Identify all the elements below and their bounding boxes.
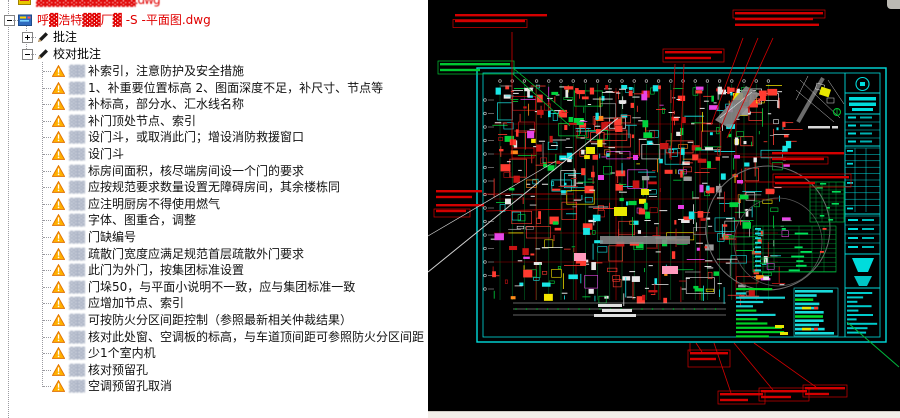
callout-text-redacted — [720, 393, 763, 395]
comment-text: 应按规范要求数量设置无障碍房间，其余楼栋同 — [88, 180, 340, 195]
annotation-tree-panel: ▓▓▓▓▓▓▓▓▓▓▓▓.dwg 呼▓浩特▓▓厂▓ -S -平面图.dwg 批注 — [0, 0, 428, 418]
comment-author-redacted: ▓▓ — [69, 331, 84, 344]
review-comment-item[interactable]: ▓▓ 字体、图重合，调整 — [0, 212, 428, 228]
review-comment-item[interactable]: ▓▓ 应按规范要求数量设置无障碍房间，其余楼栋同 — [0, 179, 428, 195]
warning-icon — [52, 181, 65, 193]
review-comment-item[interactable]: ▓▓ 门垛50，与平面小说明不一致，应与集团标准一致 — [0, 279, 428, 295]
callout-text-redacted — [665, 51, 722, 53]
callout-text-redacted — [775, 176, 849, 178]
callout-text-redacted — [761, 390, 807, 392]
warning-icon — [52, 115, 65, 127]
review-comment-item[interactable]: ▓▓ 疏散门宽度应满足规范首层疏散外门要求 — [0, 246, 428, 262]
comment-author-redacted: ▓▓ — [69, 380, 84, 393]
comment-text: 可按防火分区间距控制（参照最新相关仲裁结果） — [88, 313, 352, 328]
comment-author-redacted: ▓▓ — [69, 347, 84, 360]
review-comment-item[interactable]: ▓▓ 少1个室内机 — [0, 345, 428, 361]
cad-drawing[interactable] — [428, 0, 900, 418]
callout-text-redacted — [440, 63, 510, 65]
warning-icon — [52, 380, 65, 392]
cad-background — [428, 0, 900, 418]
review-comment-item[interactable]: ▓▓ 设门斗，或取消此门；增设消防救援窗口 — [0, 129, 428, 145]
comment-text: 补标高，部分水、汇水线名称 — [88, 97, 244, 112]
review-comment-item[interactable]: ▓▓ 核对此处窗、空调板的标高，与车道顶间距可参照防火分区间距 — [0, 329, 428, 345]
callout-text-redacted — [665, 57, 711, 59]
warning-icon — [52, 148, 65, 160]
comment-text: 应注明厨房不得使用燃气 — [88, 197, 220, 212]
callout-text-redacted — [455, 14, 547, 16]
site-plan-caption-redacted — [808, 126, 830, 129]
pencil-icon — [37, 31, 50, 43]
callout-text-redacted — [690, 358, 716, 360]
warning-icon — [52, 65, 65, 77]
callout-text-redacted — [720, 399, 748, 401]
comment-text: 补门顶处节点、索引 — [88, 114, 196, 129]
comment-text: 门垛50，与平面小说明不一致，应与集团标准一致 — [88, 280, 355, 295]
warning-icon — [52, 231, 65, 243]
warning-icon — [52, 314, 65, 326]
comment-author-redacted: ▓▓ — [69, 248, 84, 261]
comment-text: 疏散门宽度应满足规范首层疏散外门要求 — [88, 247, 304, 262]
tree-branch-review[interactable]: 校对批注 — [0, 46, 428, 62]
warning-icon — [52, 248, 65, 260]
warning-icon — [52, 281, 65, 293]
review-comment-item[interactable]: ▓▓ 可按防火分区间距控制（参照最新相关仲裁结果） — [0, 312, 428, 328]
comment-author-redacted: ▓▓ — [69, 364, 84, 377]
callout-text-redacted — [436, 190, 482, 192]
comment-author-redacted: ▓▓ — [69, 297, 84, 310]
callout-text-redacted — [436, 196, 472, 198]
warning-icon — [52, 264, 65, 276]
tree-node-file-clipped[interactable]: ▓▓▓▓▓▓▓▓▓▓▓▓.dwg — [0, 0, 428, 8]
callout-text-redacted — [735, 24, 819, 26]
comment-text: 字体、图重合，调整 — [88, 213, 196, 228]
comment-author-redacted: ▓▓ — [69, 198, 84, 211]
callout-text-redacted — [455, 20, 525, 22]
pencil-icon — [37, 48, 50, 60]
warning-icon — [52, 98, 65, 110]
comment-text: 核对此处窗、空调板的标高，与车道顶间距可参照防火分区间距 — [88, 330, 424, 345]
branch-label: 批注 — [53, 30, 77, 45]
comment-text: 补索引，注意防护及安全措施 — [88, 64, 244, 79]
callout-text-redacted — [440, 69, 480, 71]
tree-node-label: ▓▓▓▓▓▓▓▓▓▓▓▓.dwg — [36, 0, 160, 8]
comment-author-redacted: ▓▓ — [69, 115, 84, 128]
application-window: ▓▓▓▓▓▓▓▓▓▓▓▓.dwg 呼▓浩特▓▓厂▓ -S -平面图.dwg 批注 — [0, 0, 900, 418]
review-comment-item[interactable]: ▓▓ 标房间面积，核尽端房间设一个门的要求 — [0, 163, 428, 179]
review-comment-item[interactable]: ▓▓ 补门顶处节点、索引 — [0, 113, 428, 129]
warning-icon — [52, 331, 65, 343]
comment-text: 空调预留孔取消 — [88, 379, 172, 394]
callout-text-redacted — [775, 182, 815, 184]
comment-text: 标房间面积，核尽端房间设一个门的要求 — [88, 164, 304, 179]
comment-text: 此门为外门，按集团标准设置 — [88, 263, 244, 278]
callout-text-redacted — [690, 352, 728, 354]
comment-author-redacted: ▓▓ — [69, 148, 84, 161]
review-comment-item[interactable]: ▓▓ 空调预留孔取消 — [0, 378, 428, 394]
comment-author-redacted: ▓▓ — [69, 214, 84, 227]
comment-author-redacted: ▓▓ — [69, 314, 84, 327]
window-edge — [428, 411, 900, 418]
comment-author-redacted: ▓▓ — [69, 165, 84, 178]
callout-text-redacted — [805, 387, 845, 389]
comment-text: 1、补重要位置标高 2、图面深度不足，补尺寸、节点等 — [88, 81, 383, 96]
warning-icon — [52, 165, 65, 177]
comment-author-redacted: ▓▓ — [69, 98, 84, 111]
dwg-file-icon — [18, 14, 32, 26]
review-comment-item[interactable]: ▓▓ 应增加节点、索引 — [0, 295, 428, 311]
comment-text: 设门斗，或取消此门；增设消防救援窗口 — [88, 130, 304, 145]
review-comment-item[interactable]: ▓▓ 应注明厨房不得使用燃气 — [0, 196, 428, 212]
callout-text-redacted — [761, 396, 791, 398]
callout-text-redacted — [772, 158, 824, 160]
comment-text: 设门斗 — [88, 147, 124, 162]
comment-text: 少1个室内机 — [88, 346, 156, 361]
callout-text-redacted — [805, 393, 829, 395]
callout-text-redacted — [735, 12, 823, 14]
window-corner — [887, 0, 900, 9]
comment-author-redacted: ▓▓ — [69, 65, 84, 78]
review-comment-item[interactable]: ▓▓ 门缺编号 — [0, 229, 428, 245]
callout-text-redacted — [772, 152, 844, 154]
review-comment-item[interactable]: ▓▓ 核对预留孔 — [0, 362, 428, 378]
warning-icon — [52, 297, 65, 309]
review-comment-item[interactable]: ▓▓ 补标高，部分水、汇水线名称 — [0, 96, 428, 112]
callout-text-redacted — [436, 204, 484, 206]
review-comment-item[interactable]: ▓▓ 补索引，注意防护及安全措施 — [0, 63, 428, 79]
review-comment-item[interactable]: ▓▓ 设门斗 — [0, 146, 428, 162]
tree-branch-annotations[interactable]: 批注 — [0, 29, 428, 45]
comment-author-redacted: ▓▓ — [69, 131, 84, 144]
dwg-file-icon — [18, 0, 31, 5]
comment-author-redacted: ▓▓ — [69, 281, 84, 294]
comment-author-redacted: ▓▓ — [69, 231, 84, 244]
callout-text-redacted — [436, 210, 466, 212]
review-comment-item[interactable]: ▓▓ 此门为外门，按集团标准设置 — [0, 262, 428, 278]
tree-node-dwg-file[interactable]: 呼▓浩特▓▓厂▓ -S -平面图.dwg — [0, 12, 428, 28]
branch-label: 校对批注 — [53, 47, 101, 62]
warning-icon — [52, 131, 65, 143]
comment-text: 门缺编号 — [88, 230, 136, 245]
review-comment-item[interactable]: ▓▓ 1、补重要位置标高 2、图面深度不足，补尺寸、节点等 — [0, 80, 428, 96]
warning-icon — [52, 347, 65, 359]
warning-icon — [52, 198, 65, 210]
comment-author-redacted: ▓▓ — [69, 82, 84, 95]
warning-icon — [52, 364, 65, 376]
comment-text: 应增加节点、索引 — [88, 296, 184, 311]
dwg-file-name: 呼▓浩特▓▓厂▓ -S -平面图.dwg — [37, 13, 211, 28]
comment-author-redacted: ▓▓ — [69, 264, 84, 277]
warning-icon — [52, 214, 65, 226]
cad-viewport[interactable] — [428, 0, 900, 418]
comment-author-redacted: ▓▓ — [69, 181, 84, 194]
comment-text: 核对预留孔 — [88, 363, 148, 378]
warning-icon — [52, 82, 65, 94]
